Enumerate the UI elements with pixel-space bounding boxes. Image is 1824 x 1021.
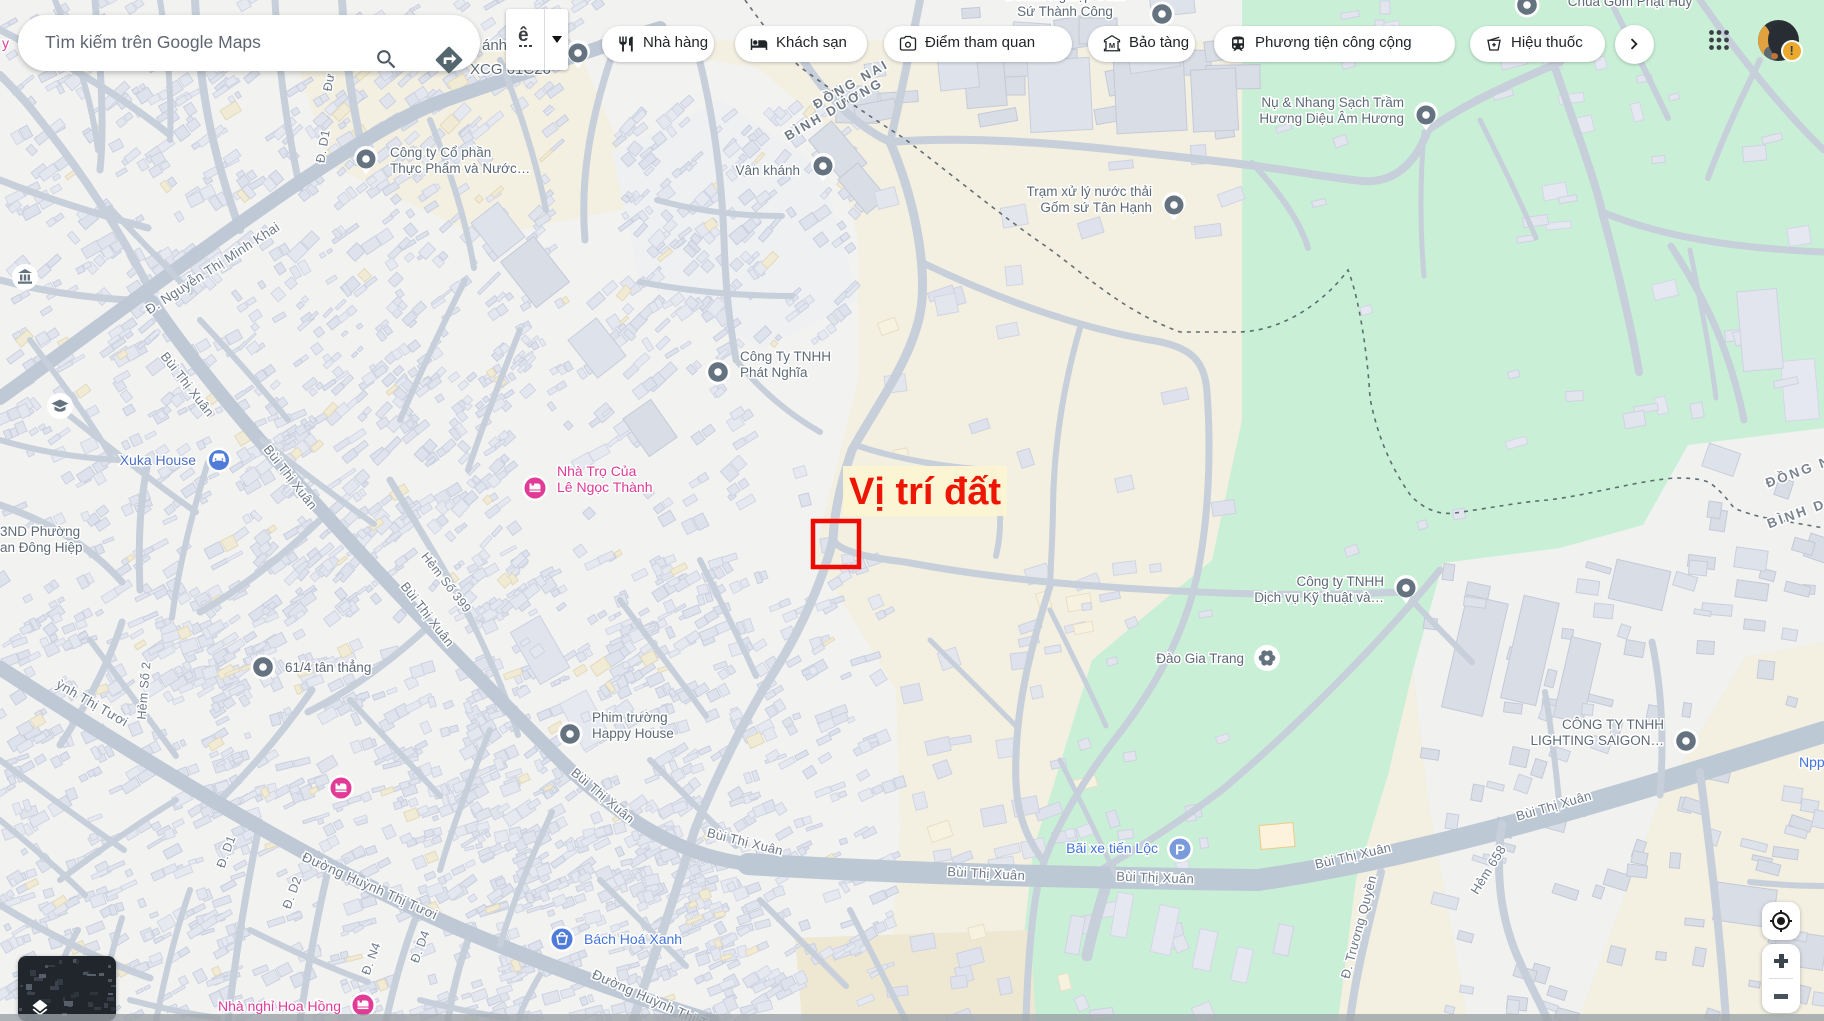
svg-text:M: M xyxy=(1109,41,1115,50)
svg-text:ánh: ánh xyxy=(482,37,507,54)
svg-text:Vân khánh: Vân khánh xyxy=(735,163,800,178)
svg-text:Bãi xe tiến Lộc: Bãi xe tiến Lộc xyxy=(1066,840,1158,856)
svg-text:Phim trườngHappy House: Phim trườngHappy House xyxy=(592,710,674,741)
svg-text:Bách Hoá Xanh: Bách Hoá Xanh xyxy=(584,931,682,947)
svg-text:Npp M: Npp M xyxy=(1799,754,1824,770)
svg-text:Nụ & Nhang Sạch TrầmHương Diệu: Nụ & Nhang Sạch TrầmHương Diệu Âm Hương xyxy=(1259,95,1404,126)
svg-text:Xuka House: Xuka House xyxy=(120,452,196,468)
svg-text:Đào Gia Trang: Đào Gia Trang xyxy=(1156,651,1244,666)
svg-text:P: P xyxy=(1175,842,1185,859)
svg-text:Doanh Nghiệp GốmSứ Thành Công: Doanh Nghiệp GốmSứ Thành Công xyxy=(1005,0,1124,19)
svg-text:Vị trí đất: Vị trí đất xyxy=(849,471,1001,513)
svg-text:y: y xyxy=(2,35,9,51)
svg-text:61/4 tân thẳng: 61/4 tân thẳng xyxy=(285,660,371,675)
svg-text:Trạm xử lý nước thảiGốm sứ Tân: Trạm xử lý nước thảiGốm sứ Tân Hạnh xyxy=(1027,184,1152,215)
svg-text:Nhà nghỉ Hoa Hồng: Nhà nghỉ Hoa Hồng xyxy=(218,998,341,1014)
svg-text:Bùi Thị Xuân: Bùi Thị Xuân xyxy=(1116,869,1194,887)
svg-text:Chùa Gốm Phật Huy: Chùa Gốm Phật Huy xyxy=(1568,0,1693,9)
svg-text:3ND Phườngan Đông Hiệp: 3ND Phườngan Đông Hiệp xyxy=(0,524,83,555)
